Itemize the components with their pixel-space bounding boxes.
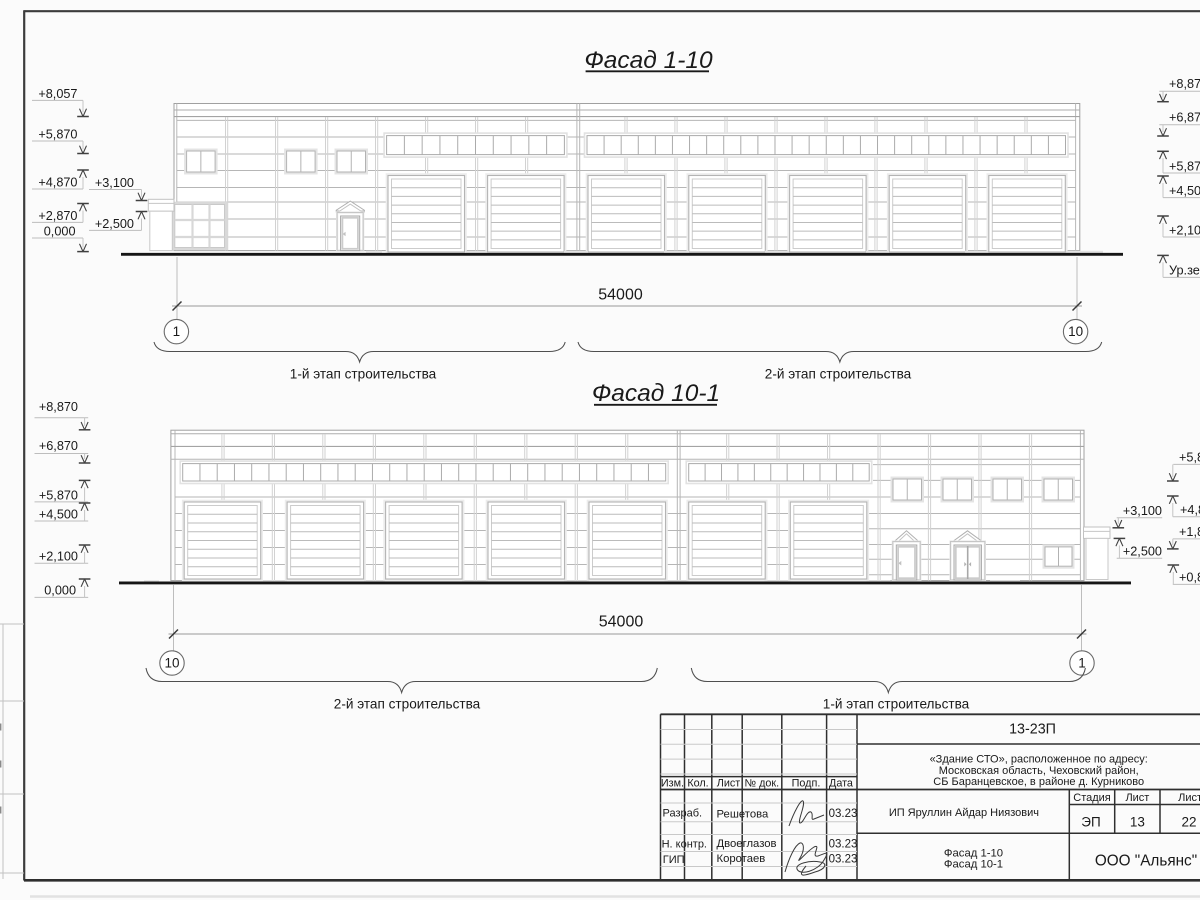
svg-text:+1,870: +1,870	[1179, 525, 1200, 539]
svg-text:ГИП: ГИП	[663, 854, 685, 866]
svg-text:0,000: 0,000	[44, 584, 76, 598]
svg-text:03.23: 03.23	[829, 838, 858, 850]
svg-text:1: 1	[1078, 656, 1086, 671]
svg-text:03.23: 03.23	[829, 853, 858, 865]
svg-text:54000: 54000	[599, 614, 644, 631]
svg-text:+4,870: +4,870	[38, 176, 77, 190]
svg-text:+5,870: +5,870	[38, 128, 77, 142]
svg-text:22: 22	[1181, 815, 1196, 830]
svg-text:+6,870: +6,870	[1169, 110, 1200, 124]
svg-text:+8,870: +8,870	[39, 400, 78, 414]
svg-text:+5,870: +5,870	[1169, 159, 1200, 173]
svg-text:Фасад 10-1: Фасад 10-1	[944, 858, 1003, 870]
svg-text:0,000: 0,000	[44, 225, 76, 239]
svg-text:Двоеглазов: Двоеглазов	[717, 838, 777, 850]
svg-text:+0,870: +0,870	[1179, 571, 1200, 585]
svg-text:+6,870: +6,870	[39, 439, 78, 453]
svg-text:Решетова: Решетова	[717, 809, 769, 821]
svg-text:+2,500: +2,500	[95, 217, 134, 231]
svg-text:10: 10	[1068, 324, 1083, 339]
svg-text:Лист: Лист	[717, 778, 741, 790]
svg-text:«Здание СТО», расположенное по: «Здание СТО», расположенное по адресу:	[930, 754, 1148, 766]
svg-text:Дата: Дата	[829, 778, 853, 790]
svg-text:+4,500: +4,500	[1169, 184, 1200, 198]
svg-text:Коротаев: Коротаев	[717, 853, 766, 865]
svg-text:Разраб.: Разраб.	[663, 808, 703, 820]
svg-text:+2,870: +2,870	[38, 209, 77, 223]
svg-text:2-й этап строительства: 2-й этап строительства	[765, 367, 912, 382]
svg-text:+3,100: +3,100	[95, 176, 134, 190]
svg-text:Фасад 1-10: Фасад 1-10	[584, 47, 713, 74]
svg-text:ООО "Альянс": ООО "Альянс"	[1095, 853, 1197, 870]
svg-text:1: 1	[173, 324, 181, 339]
svg-text:ИП Яруллин Айдар Ниязович: ИП Яруллин Айдар Ниязович	[889, 807, 1039, 819]
svg-text:13: 13	[1130, 815, 1145, 830]
svg-text:Листов: Листов	[1178, 792, 1200, 804]
svg-text:+3,100: +3,100	[1123, 504, 1162, 518]
svg-text:Стадия: Стадия	[1073, 792, 1111, 804]
svg-text:+4,500: +4,500	[39, 507, 78, 521]
svg-text:Изм.: Изм.	[661, 778, 684, 790]
svg-text:+4,870: +4,870	[1180, 503, 1200, 517]
svg-text:+8,057: +8,057	[38, 87, 77, 101]
svg-text:ЭП: ЭП	[1081, 815, 1100, 830]
svg-text:54000: 54000	[598, 286, 643, 303]
svg-text:03.23: 03.23	[829, 808, 858, 820]
svg-text:Кол.: Кол.	[687, 778, 708, 790]
svg-text:+5,870: +5,870	[1179, 450, 1200, 464]
svg-text:№ док.: № док.	[744, 778, 779, 790]
svg-text:Московская область, Чеховский: Московская область, Чеховский район,	[939, 765, 1139, 777]
svg-text:СБ Баранцевское, в районе д. К: СБ Баранцевское, в районе д. Курниково	[933, 776, 1144, 788]
svg-text:Лист: Лист	[1125, 792, 1149, 804]
svg-text:Фасад 10-1: Фасад 10-1	[592, 380, 720, 407]
svg-text:1-й этап строительства: 1-й этап строительства	[290, 367, 437, 382]
svg-text:+5,870: +5,870	[39, 489, 78, 503]
svg-text:Н. контр.: Н. контр.	[662, 839, 707, 851]
svg-text:+2,100: +2,100	[39, 549, 78, 563]
svg-text:Ур.земли: Ур.земли	[1169, 264, 1200, 278]
svg-text:13-23П: 13-23П	[1009, 722, 1056, 738]
svg-text:+2,500: +2,500	[1123, 544, 1162, 558]
svg-text:+2,100: +2,100	[1169, 223, 1200, 237]
svg-text:10: 10	[164, 656, 179, 671]
svg-text:Подп.: Подп.	[792, 778, 821, 790]
svg-text:1-й этап строительства: 1-й этап строительства	[823, 696, 970, 711]
svg-text:+8,870: +8,870	[1169, 77, 1200, 91]
svg-text:2-й этап строительства: 2-й этап строительства	[334, 696, 481, 711]
